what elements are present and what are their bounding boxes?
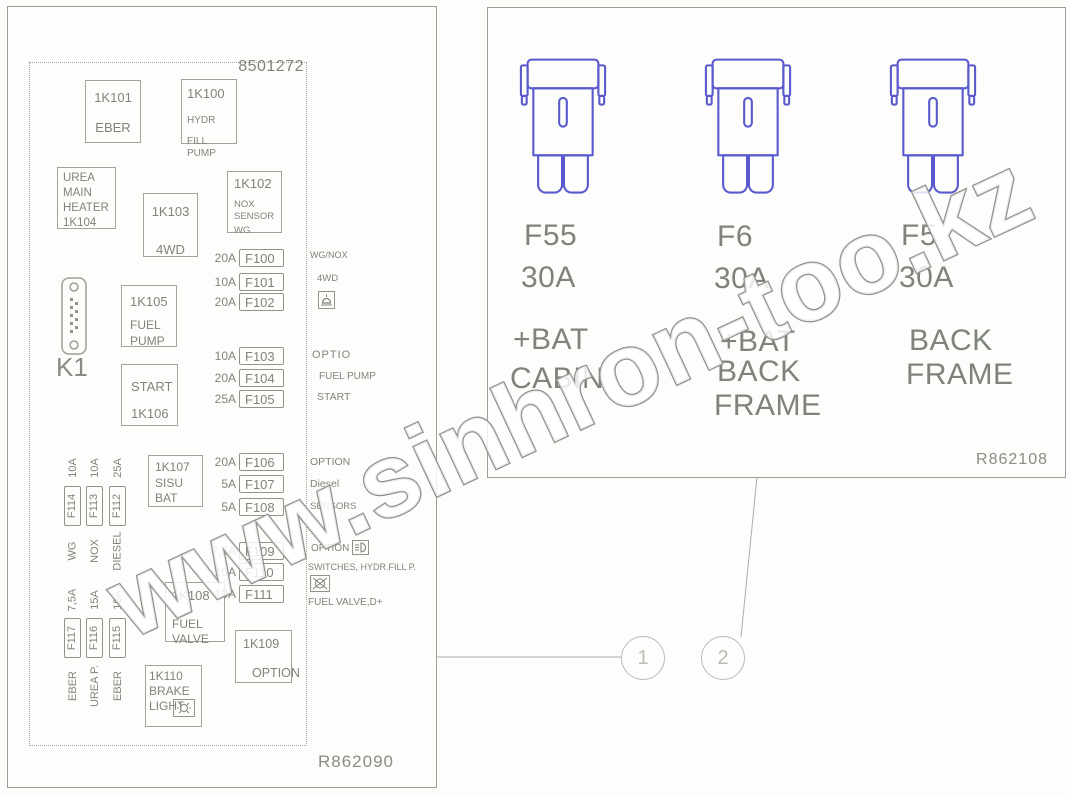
callout-1-number: 1: [637, 647, 648, 670]
fuse-f5-amp: 30A: [899, 263, 954, 293]
callout-2-number: 2: [717, 647, 728, 670]
maxi-fuse-symbols: [0, 0, 1070, 796]
callout-2-leader-line: [741, 477, 757, 637]
maxi-fuse-icon: [706, 60, 790, 193]
fuse-diagram-page: 8501272 1K101 EBER 1K100 HYDR FILL PUMP …: [0, 0, 1070, 796]
fuse-f55-circuit-2: CABIN: [510, 364, 604, 394]
fuse-f6-circuit-1: +BAT: [720, 327, 796, 357]
fuse-f55-circuit-1: +BAT: [513, 325, 589, 355]
fuse-f55-amp: 30A: [521, 263, 576, 293]
maxi-fuse-icon: [891, 60, 975, 193]
right-drawing-ref: R862108: [948, 451, 1048, 469]
callout-2: 2: [701, 636, 745, 680]
fuse-f6-circuit-2: BACK: [717, 357, 801, 387]
fuse-f5-circuit-2: FRAME: [906, 360, 1014, 390]
fuse-f5-circuit-1: BACK: [909, 326, 993, 356]
fuse-f55-id: F55: [524, 221, 577, 251]
callout-1: 1: [621, 636, 665, 680]
fuse-f6-id: F6: [717, 222, 753, 252]
fuse-f6-circuit-3: FRAME: [714, 391, 822, 421]
fuse-f5-id: F5: [901, 221, 937, 251]
maxi-fuse-icon: [521, 60, 605, 193]
fuse-f6-amp: 30A: [714, 264, 769, 294]
